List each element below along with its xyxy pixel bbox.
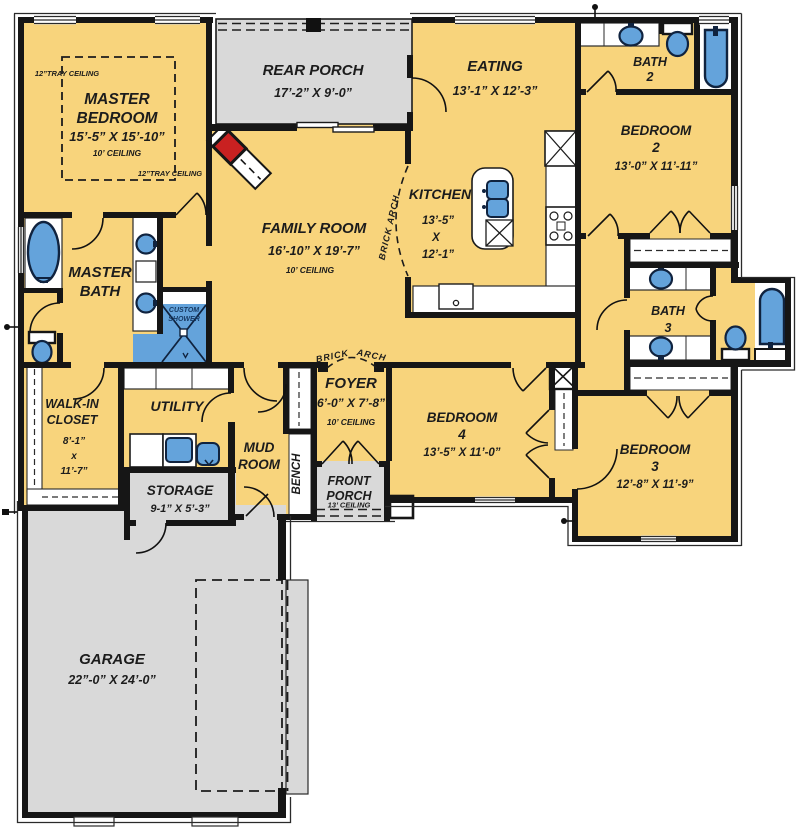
svg-text:BATH: BATH [633, 55, 668, 69]
svg-text:BATH: BATH [651, 304, 686, 318]
svg-text:BEDROOM: BEDROOM [427, 410, 498, 425]
svg-text:CLOSET: CLOSET [47, 413, 99, 427]
svg-text:11’-7”: 11’-7” [60, 466, 87, 477]
svg-text:13’-5” X 11’-0”: 13’-5” X 11’-0” [423, 447, 500, 459]
svg-text:12”TRAY CEILING: 12”TRAY CEILING [138, 169, 202, 178]
svg-text:REAR PORCH: REAR PORCH [263, 62, 365, 79]
svg-text:FOYER: FOYER [325, 375, 377, 392]
svg-text:8’-1”: 8’-1” [63, 436, 85, 447]
svg-text:BEDROOM: BEDROOM [77, 110, 159, 127]
svg-text:GARAGE: GARAGE [79, 651, 146, 668]
svg-text:4: 4 [457, 427, 466, 442]
svg-text:KITCHEN: KITCHEN [409, 186, 472, 202]
svg-text:3: 3 [665, 321, 672, 335]
svg-text:10’ CEILING: 10’ CEILING [327, 417, 376, 427]
svg-text:2: 2 [651, 140, 660, 155]
svg-text:10’ CEILING: 10’ CEILING [286, 265, 335, 275]
svg-text:CUSTOM: CUSTOM [169, 307, 199, 314]
svg-text:EATING: EATING [467, 58, 523, 75]
svg-text:13’-5”: 13’-5” [422, 215, 454, 227]
svg-text:13’-0” X 11’-11”: 13’-0” X 11’-11” [615, 161, 698, 173]
svg-text:12”TRAY CEILING: 12”TRAY CEILING [35, 69, 99, 78]
svg-text:16’-10” X 19’-7”: 16’-10” X 19’-7” [268, 244, 360, 258]
svg-text:MASTER: MASTER [84, 91, 150, 108]
svg-text:6’-0” X 7’-8”: 6’-0” X 7’-8” [317, 396, 385, 410]
svg-text:BEDROOM: BEDROOM [620, 442, 691, 457]
svg-text:13’ CEILING: 13’ CEILING [328, 501, 371, 510]
svg-text:UTILITY: UTILITY [151, 398, 206, 414]
svg-text:x: x [70, 451, 77, 462]
svg-text:BATH: BATH [80, 283, 122, 300]
svg-text:15’-5” X 15’-10”: 15’-5” X 15’-10” [69, 129, 165, 144]
svg-text:13’-1” X 12’-3”: 13’-1” X 12’-3” [453, 84, 539, 98]
svg-text:ROOM: ROOM [238, 457, 281, 472]
svg-text:22”-0” X 24’-0”: 22”-0” X 24’-0” [67, 673, 156, 687]
svg-text:3: 3 [651, 459, 659, 474]
svg-text:BENCH: BENCH [291, 453, 303, 495]
svg-text:17’-2” X 9’-0”: 17’-2” X 9’-0” [274, 86, 353, 100]
svg-text:MASTER: MASTER [68, 264, 132, 281]
svg-text:BEDROOM: BEDROOM [621, 123, 692, 138]
svg-text:X: X [431, 232, 441, 244]
svg-text:WALK-IN: WALK-IN [45, 397, 99, 411]
svg-text:STORAGE: STORAGE [147, 483, 215, 498]
svg-text:2: 2 [646, 70, 654, 84]
svg-text:9-1” X 5’-3”: 9-1” X 5’-3” [150, 503, 210, 515]
svg-text:12’-8” X 11’-9”: 12’-8” X 11’-9” [616, 479, 693, 491]
svg-text:MUD: MUD [244, 440, 275, 455]
svg-text:10’ CEILING: 10’ CEILING [93, 148, 142, 158]
svg-text:SHOWER: SHOWER [168, 316, 200, 323]
svg-text:FAMILY ROOM: FAMILY ROOM [262, 220, 367, 237]
svg-text:12’-1”: 12’-1” [422, 249, 454, 261]
svg-text:FRONT: FRONT [327, 474, 371, 488]
